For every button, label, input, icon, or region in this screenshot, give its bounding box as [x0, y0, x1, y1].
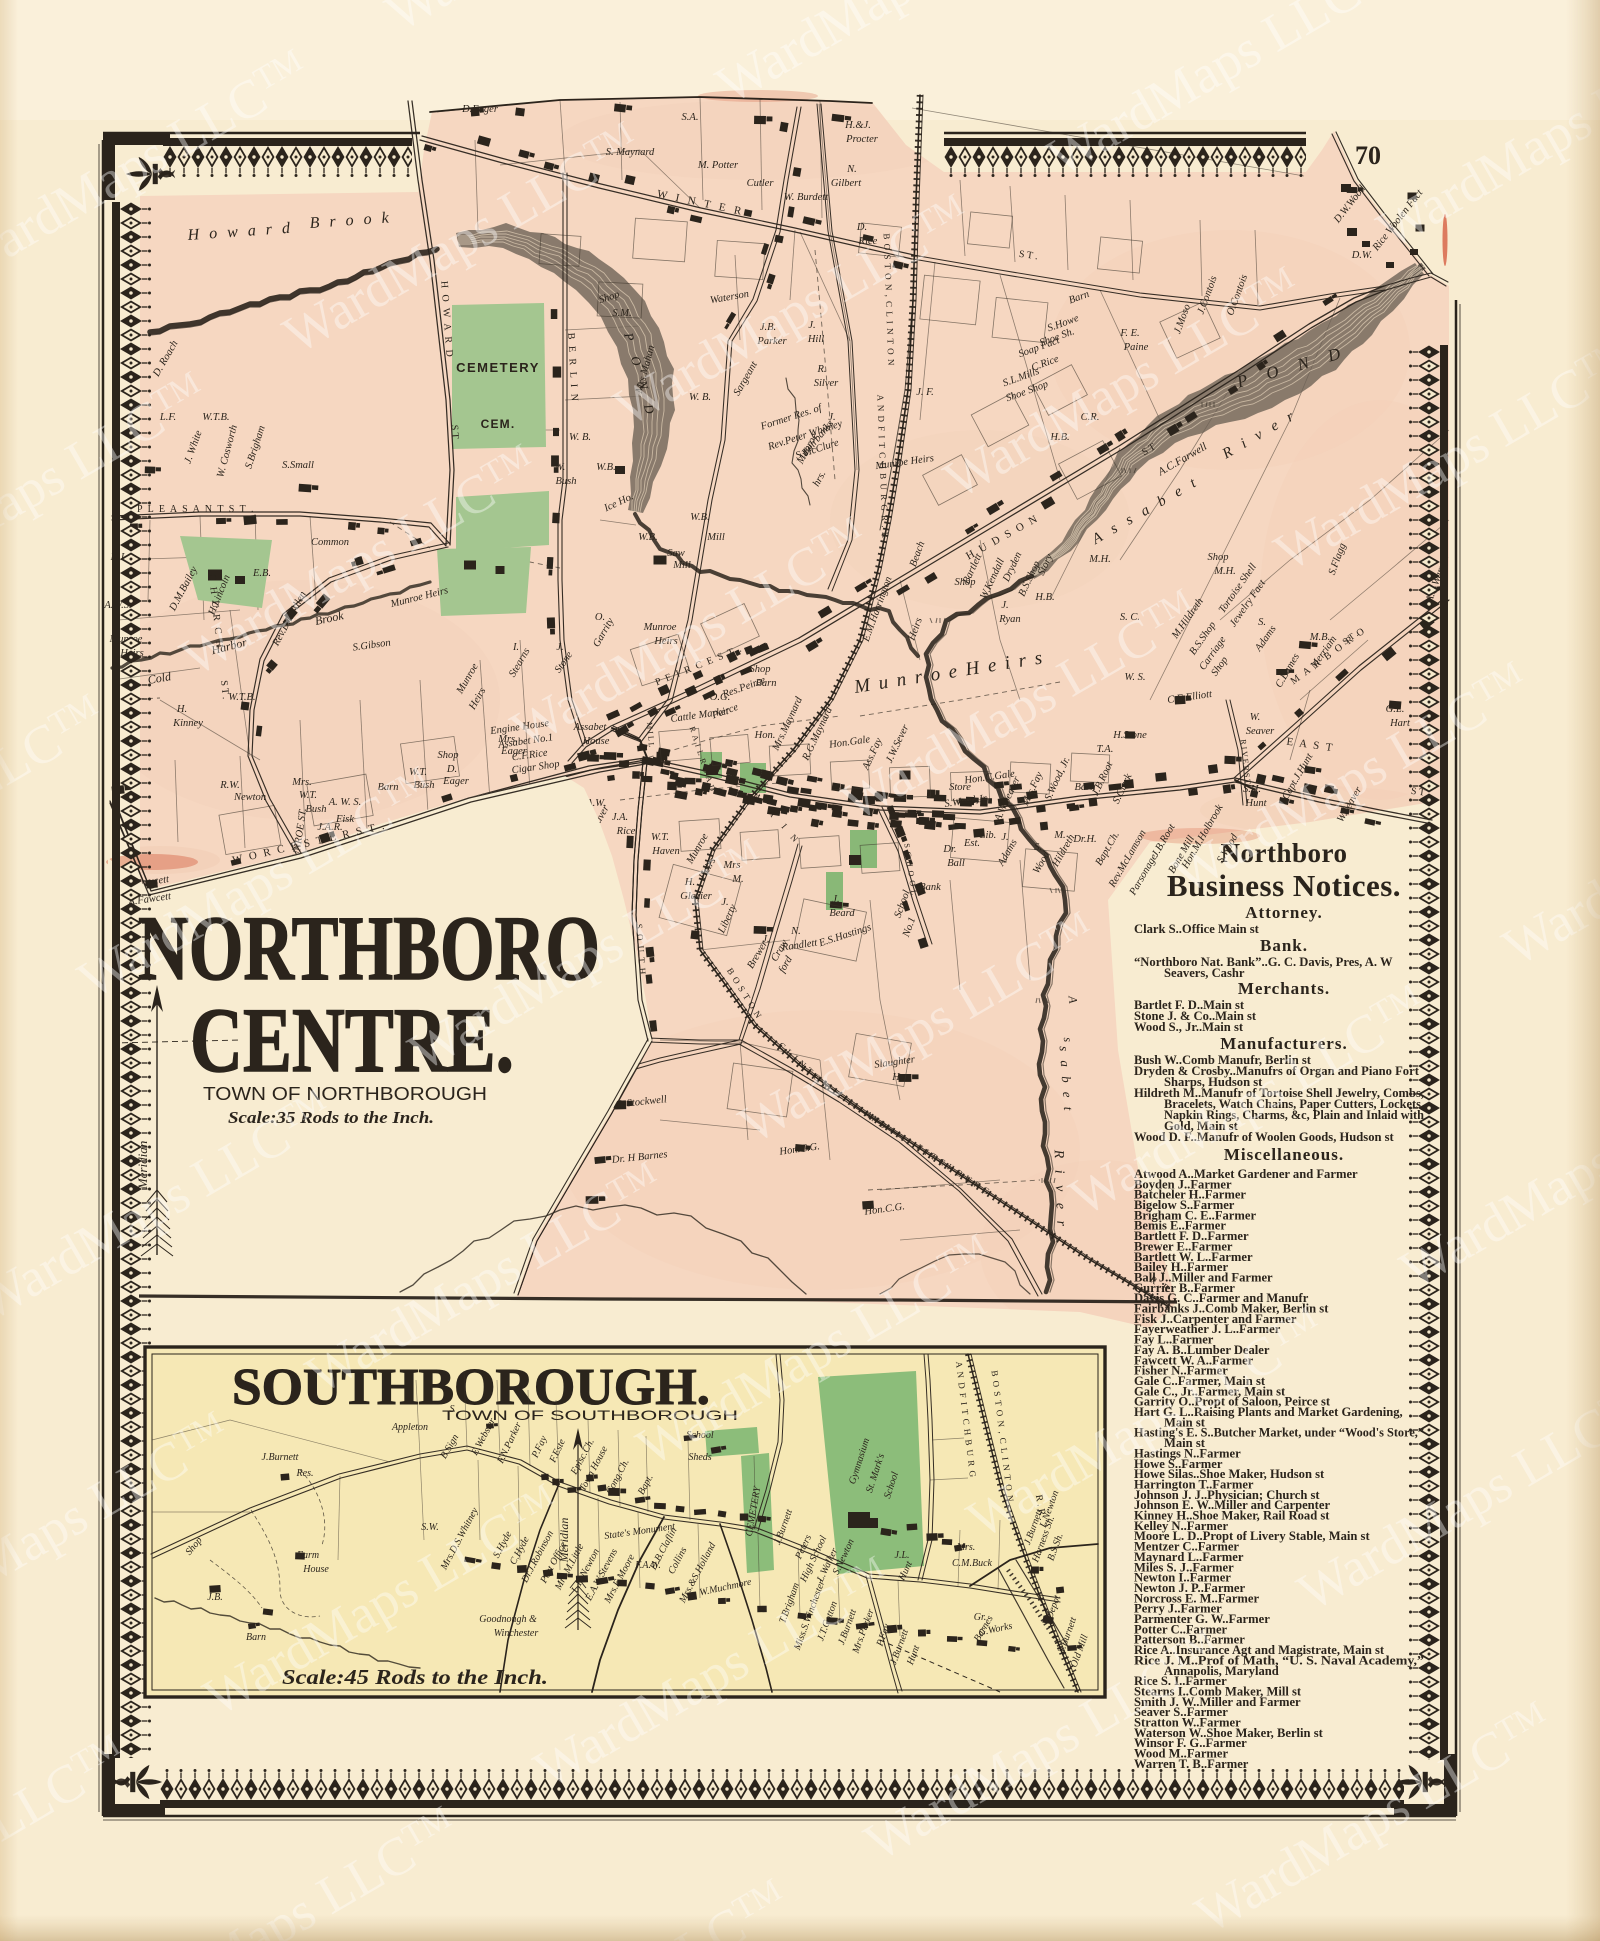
svg-text:Dr.H.: Dr.H. [1072, 834, 1096, 845]
svg-text:Merchants.: Merchants. [1238, 979, 1330, 998]
svg-text:W.B.: W.B. [596, 462, 615, 473]
svg-text:T.A.: T.A. [1097, 744, 1114, 755]
svg-text:Bank.: Bank. [1260, 936, 1308, 955]
svg-text:E.B.: E.B. [252, 568, 271, 579]
svg-text:70: 70 [1355, 141, 1381, 170]
svg-text:J.Burnett: J.Burnett [262, 1452, 299, 1463]
svg-text:W.: W. [1250, 712, 1260, 723]
svg-text:TOWN OF NORTHBOROUGH: TOWN OF NORTHBOROUGH [203, 1084, 487, 1104]
svg-text:W. B.: W. B. [569, 432, 591, 443]
svg-text:W.B.: W.B. [638, 532, 657, 543]
svg-text:S.: S. [1034, 842, 1042, 853]
svg-text:F.A.W.: F.A.W. [634, 1560, 661, 1571]
svg-text:S.A.: S.A. [682, 112, 699, 123]
svg-text:N.: N. [846, 164, 857, 175]
svg-text:Miscellaneous.: Miscellaneous. [1224, 1145, 1344, 1164]
svg-text:D.Eager: D.Eager [461, 104, 499, 115]
svg-text:J.L.: J.L. [895, 1550, 910, 1561]
svg-text:J.B.: J.B. [207, 1592, 223, 1603]
svg-text:House: House [582, 736, 610, 747]
svg-text:Silver: Silver [814, 378, 839, 389]
svg-text:Ryan: Ryan [998, 614, 1020, 625]
svg-text:S T: S T [449, 424, 461, 439]
svg-text:Gilbert: Gilbert [831, 178, 862, 189]
svg-text:Saw: Saw [667, 548, 685, 559]
svg-text:Warren T. B..Farmer: Warren T. B..Farmer [1134, 1757, 1249, 1771]
svg-text:House: House [302, 1564, 329, 1575]
svg-text:H.: H. [176, 704, 187, 715]
svg-text:Cutler: Cutler [747, 178, 775, 189]
svg-text:Mrs.: Mrs. [497, 734, 518, 745]
svg-text:Goodnough &: Goodnough & [479, 1614, 537, 1625]
svg-text:H.B.: H.B. [1034, 592, 1054, 603]
svg-text:Kinney: Kinney [172, 718, 203, 729]
svg-text:J.: J. [832, 894, 839, 905]
svg-text:Mrs.: Mrs. [291, 777, 312, 788]
svg-text:Haven: Haven [651, 846, 679, 857]
svg-text:H.Stone: H.Stone [1112, 730, 1147, 741]
svg-text:Mrs.: Mrs. [956, 1542, 976, 1553]
svg-text:F. E.: F. E. [1119, 328, 1139, 339]
svg-text:Est.: Est. [963, 838, 980, 849]
svg-text:Rice: Rice [616, 826, 636, 837]
svg-text:Newton: Newton [233, 792, 266, 803]
svg-text:D.W.: D.W. [1351, 250, 1373, 261]
svg-text:Seaver: Seaver [1246, 726, 1275, 737]
svg-text:Hon.: Hon. [754, 730, 776, 741]
svg-text:R.: R. [816, 364, 826, 375]
svg-text:Beard: Beard [829, 908, 855, 919]
svg-text:Dr.: Dr. [942, 844, 956, 855]
svg-text:J.: J. [1001, 600, 1008, 611]
svg-text:Barn: Barn [756, 678, 777, 689]
svg-text:R i v e r: R i v e r [1051, 1148, 1069, 1230]
svg-text:W.T.: W.T. [651, 832, 669, 843]
svg-text:Bank: Bank [919, 882, 941, 893]
svg-text:J.: J. [556, 642, 563, 653]
svg-text:Clark S..Office Main st: Clark S..Office Main st [1134, 922, 1260, 936]
svg-text:S.H.: S.H. [1243, 784, 1261, 795]
svg-text:Farm: Farm [296, 1550, 319, 1561]
svg-text:W.B.: W.B. [690, 512, 709, 523]
svg-text:Procter: Procter [845, 134, 879, 145]
svg-text:P L E A S A N T S T .: P L E A S A N T S T . [137, 504, 255, 515]
svg-text:Eager: Eager [442, 776, 470, 787]
svg-text:W.T.: W.T. [299, 790, 317, 801]
svg-text:M.H.: M.H. [1213, 566, 1236, 577]
svg-text:S: S [450, 1404, 455, 1415]
svg-text:Wood S., Jr..Main st: Wood S., Jr..Main st [1134, 1020, 1244, 1034]
svg-text:Lib.: Lib. [979, 830, 997, 841]
svg-text:N.: N. [790, 926, 801, 937]
svg-text:Appleton: Appleton [391, 1422, 428, 1433]
svg-text:J. F.: J. F. [916, 387, 934, 398]
svg-text:Bush: Bush [556, 476, 577, 487]
svg-text:Mill: Mill [706, 532, 725, 543]
svg-text:W.T.B.: W.T.B. [202, 412, 229, 423]
svg-text:Shop: Shop [750, 664, 771, 675]
svg-text:CEMETERY: CEMETERY [456, 360, 540, 375]
svg-text:Seavers, Cashr: Seavers, Cashr [1164, 966, 1245, 980]
svg-text:H.&J.: H.&J. [844, 120, 871, 131]
svg-text:Res.: Res. [296, 1468, 314, 1479]
svg-text:G.L.: G.L. [1386, 704, 1405, 715]
svg-text:J.A.: J.A. [612, 812, 628, 823]
svg-text:Attorney.: Attorney. [1245, 903, 1322, 922]
svg-text:CEM.: CEM. [481, 417, 516, 431]
svg-text:Winchester: Winchester [494, 1628, 539, 1639]
svg-text:Shop: Shop [438, 750, 459, 761]
svg-text:W.: W. [555, 462, 565, 473]
svg-text:S.W.: S.W. [421, 1522, 439, 1533]
svg-text:C.M.Buck: C.M.Buck [952, 1558, 993, 1569]
svg-text:S.Small: S.Small [282, 460, 314, 471]
svg-text:W. Burdett: W. Burdett [784, 192, 829, 203]
svg-text:Shop: Shop [1208, 552, 1229, 563]
svg-text:M.H.: M.H. [1088, 554, 1111, 565]
svg-text:M. Potter: M. Potter [697, 160, 739, 171]
svg-text:S.: S. [1258, 617, 1266, 628]
svg-text:Mill: Mill [672, 560, 691, 571]
svg-text:W.T.B.: W.T.B. [228, 692, 255, 703]
svg-text:Ball: Ball [947, 858, 965, 869]
svg-text:I.: I. [512, 642, 519, 653]
svg-text:R.W.: R.W. [219, 780, 239, 791]
svg-text:D.: D. [856, 222, 867, 233]
svg-text:D.: D. [446, 764, 457, 775]
svg-text:S.M.: S.M. [612, 308, 631, 319]
